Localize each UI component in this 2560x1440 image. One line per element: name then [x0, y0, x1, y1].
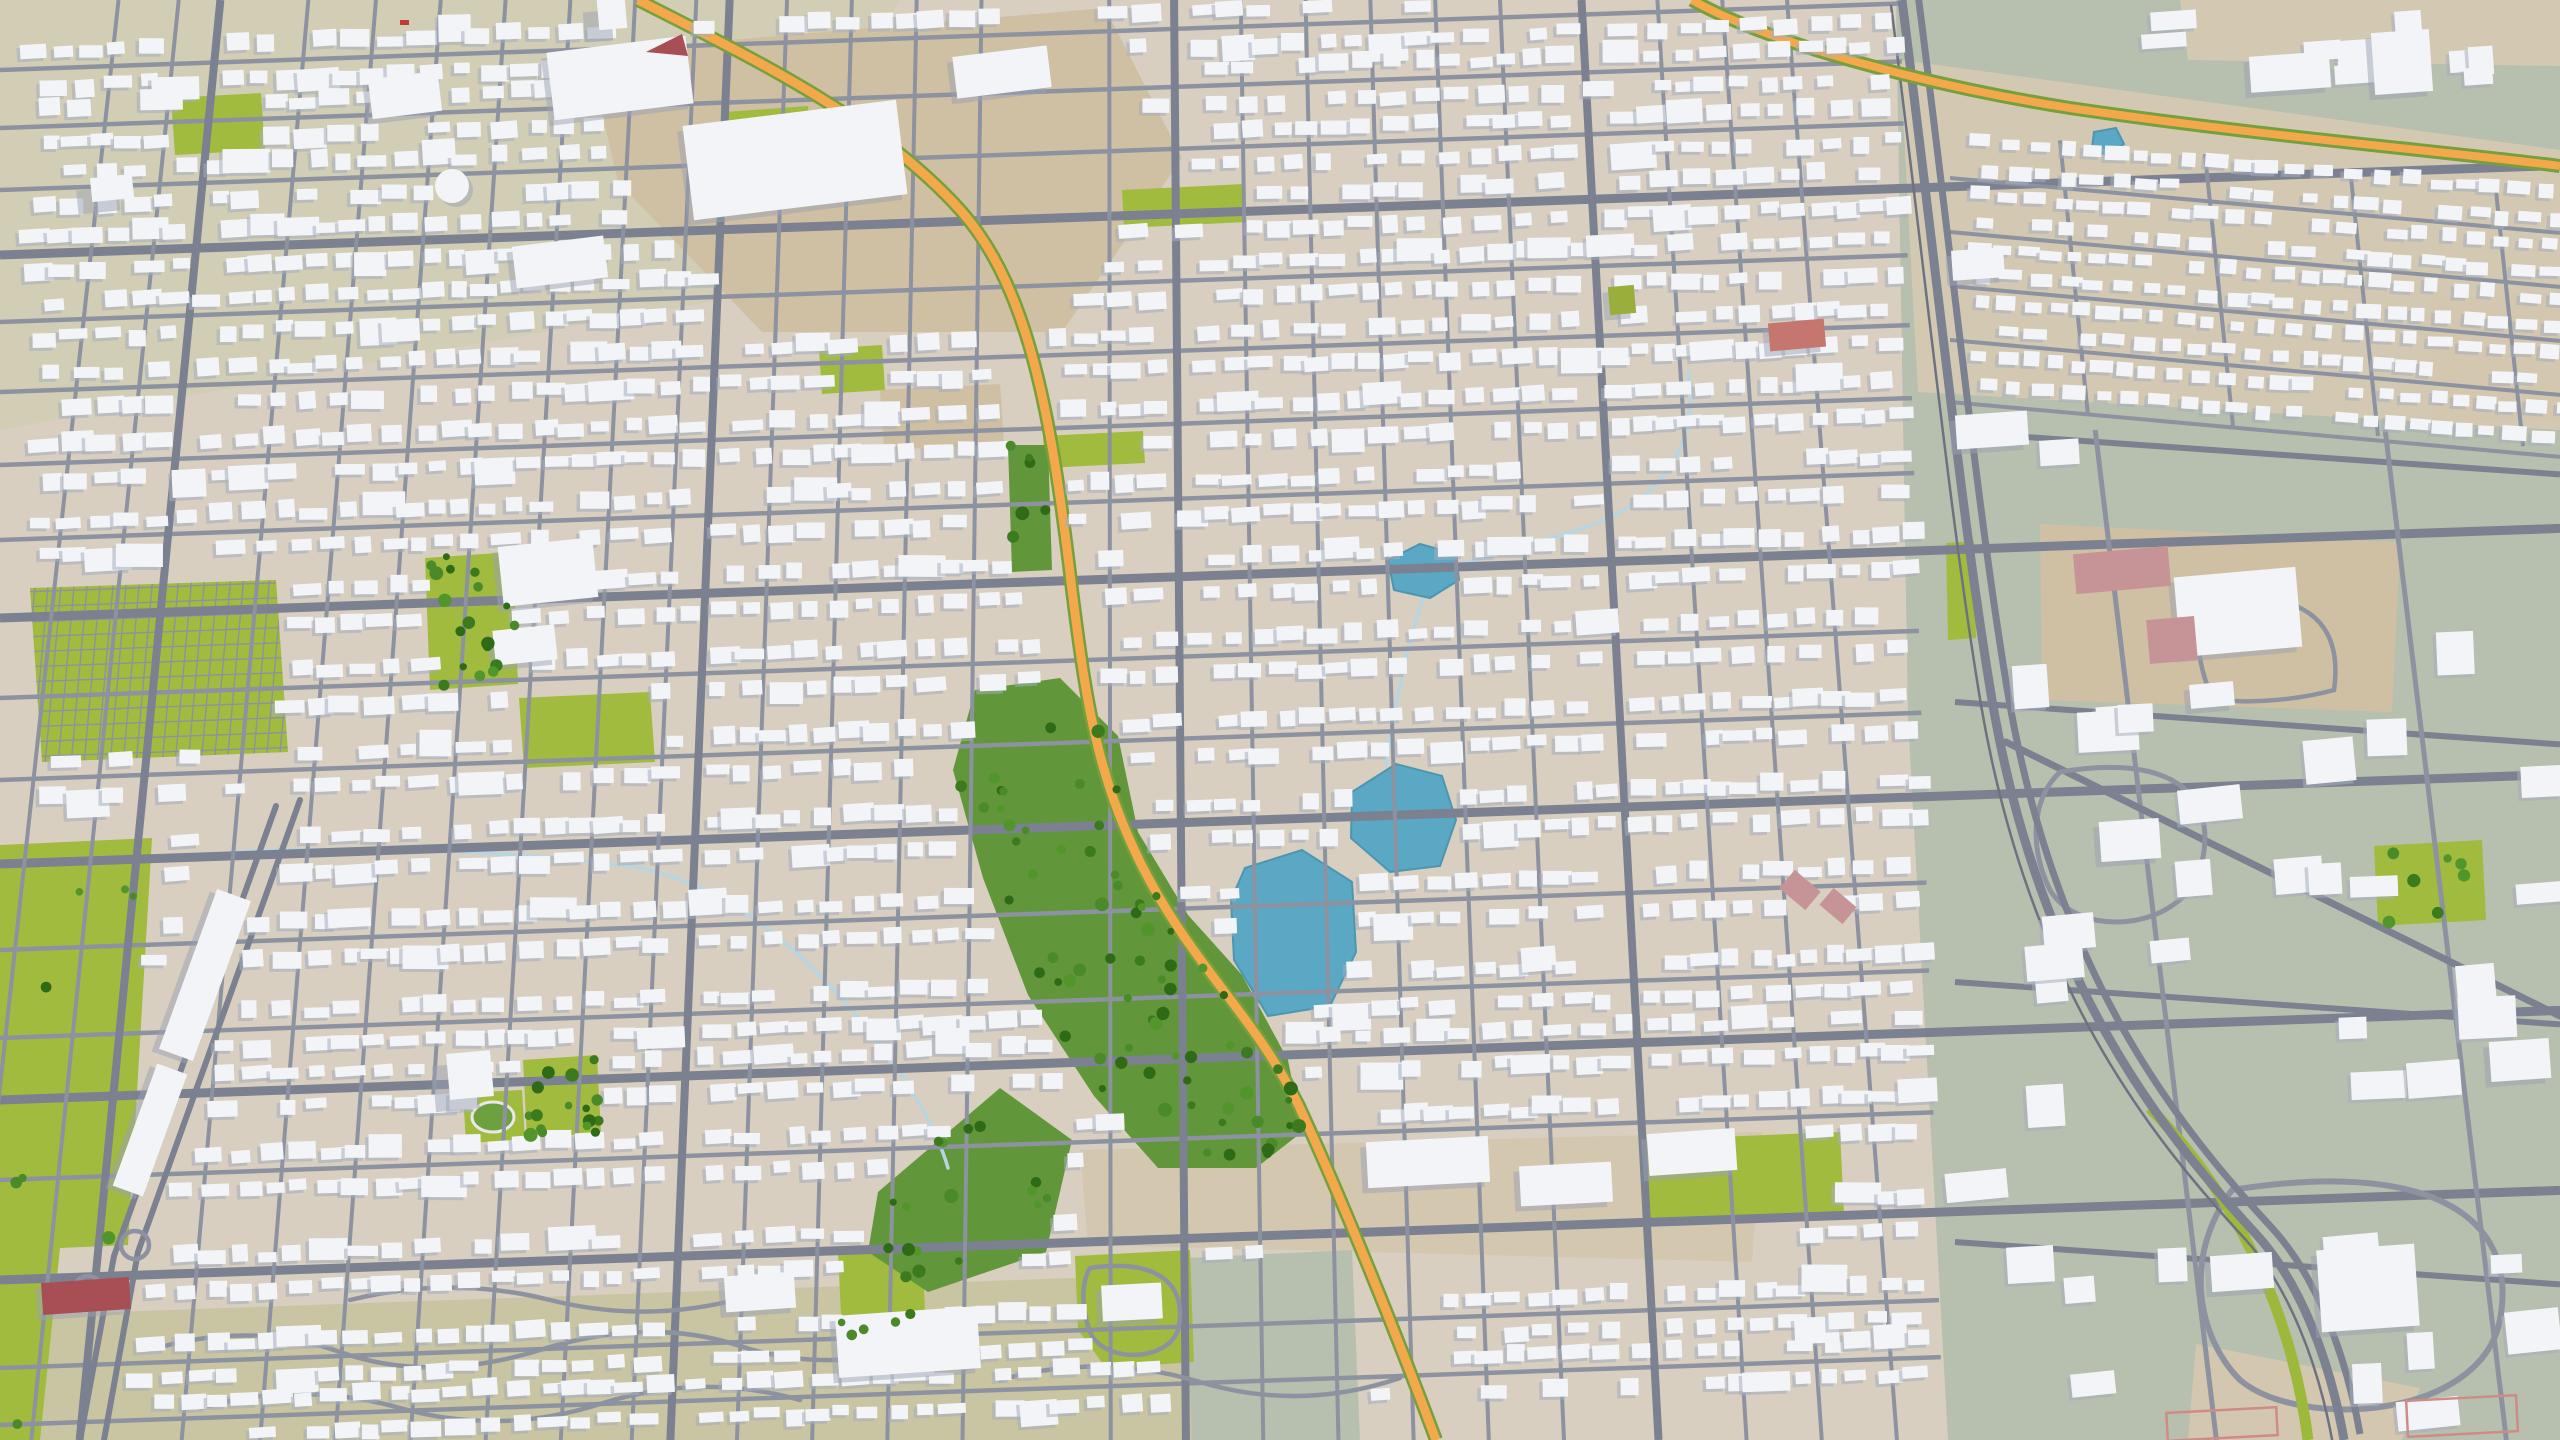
building: [487, 120, 519, 142]
building: [328, 830, 362, 845]
tree: [974, 1121, 985, 1132]
building: [640, 308, 667, 326]
building: [1153, 631, 1179, 649]
building: [453, 122, 481, 141]
building: [1527, 700, 1555, 720]
bigbox-top-left: [362, 71, 443, 125]
building: [755, 900, 784, 916]
building: [719, 1378, 743, 1393]
building: [1407, 960, 1435, 982]
building: [707, 523, 737, 539]
building: [1026, 1306, 1051, 1324]
building: [110, 512, 139, 528]
tree: [1027, 1186, 1037, 1196]
building: [2091, 305, 2120, 323]
building: [1825, 1312, 1855, 1333]
red-vehicle: [400, 20, 409, 25]
building: [1699, 1095, 1732, 1111]
building: [1321, 662, 1351, 677]
building: [2288, 376, 2313, 393]
building: [1678, 142, 1704, 155]
building: [2022, 1084, 2066, 1132]
building: [568, 1360, 594, 1375]
tree: [1226, 1041, 1235, 1050]
building: [355, 744, 389, 762]
building: [2460, 66, 2494, 89]
building: [380, 538, 409, 553]
building: [29, 196, 57, 216]
building: [312, 222, 338, 236]
building: [1883, 640, 1908, 657]
building: [1601, 385, 1635, 401]
building: [618, 653, 646, 668]
building: [452, 741, 486, 756]
building: [1413, 469, 1447, 485]
building: [541, 817, 569, 838]
building: [393, 614, 423, 631]
building: [802, 1409, 831, 1425]
building: [468, 1377, 498, 1399]
building: [1315, 468, 1340, 488]
building: [1183, 799, 1213, 814]
building: [1265, 661, 1297, 677]
building: [1849, 860, 1873, 877]
building: [1407, 911, 1434, 926]
tree: [591, 1128, 600, 1137]
building: [245, 1426, 276, 1440]
building: [976, 674, 1007, 694]
building: [1097, 668, 1127, 686]
building: [1436, 54, 1460, 69]
building: [1248, 38, 1282, 58]
building: [514, 996, 543, 1014]
tree: [1156, 1007, 1169, 1020]
building: [450, 1134, 481, 1156]
building: [1471, 215, 1502, 234]
building: [1608, 456, 1639, 475]
tree: [859, 1324, 869, 1334]
building: [1544, 423, 1569, 443]
building: [378, 425, 402, 446]
building: [790, 640, 818, 662]
tree: [1273, 1064, 1283, 1074]
building: [1721, 205, 1751, 223]
building: [1049, 1357, 1080, 1378]
building: [1559, 1097, 1591, 1115]
building: [998, 1036, 1026, 1057]
building: [1260, 503, 1292, 519]
building: [1125, 327, 1154, 346]
building: [590, 768, 614, 786]
building: [1597, 1056, 1630, 1071]
building: [1445, 1106, 1474, 1122]
building: [1677, 23, 1702, 36]
building: [386, 1035, 419, 1050]
building: [259, 425, 285, 447]
building: [411, 1237, 441, 1256]
building: [768, 342, 795, 358]
building: [421, 216, 448, 235]
building: [2517, 765, 2560, 801]
tree: [1005, 895, 1014, 904]
tree: [446, 565, 455, 574]
tree: [565, 1102, 573, 1110]
building: [1905, 776, 1931, 792]
building: [1098, 331, 1130, 344]
building: [1819, 771, 1845, 792]
building: [1434, 500, 1459, 517]
tree: [2443, 854, 2451, 862]
building: [367, 1367, 396, 1384]
ballfield-right-2: [2146, 616, 2198, 664]
building: [1256, 830, 1285, 850]
building: [1394, 738, 1425, 757]
building: [141, 395, 173, 417]
building: [455, 349, 481, 369]
building: [1671, 529, 1697, 549]
building: [748, 990, 775, 1005]
building: [461, 28, 489, 47]
building: [347, 190, 381, 207]
building: [1894, 1077, 1938, 1106]
building: [1561, 992, 1593, 1008]
building: [293, 189, 317, 204]
building: [616, 850, 648, 866]
building: [1741, 1050, 1775, 1068]
building: [377, 356, 402, 371]
building: [2392, 1396, 2461, 1435]
building: [598, 210, 627, 227]
building: [378, 1419, 408, 1435]
building: [1140, 436, 1172, 452]
depot-right-2: [1945, 247, 2005, 286]
building: [1803, 448, 1829, 468]
building: [311, 777, 341, 795]
building: [1498, 347, 1533, 368]
building: [29, 333, 56, 351]
building: [2036, 438, 2080, 469]
building: [571, 1132, 605, 1153]
building: [1303, 628, 1338, 647]
building: [227, 190, 260, 212]
building: [143, 516, 169, 531]
building: [1728, 646, 1756, 667]
building: [1501, 698, 1526, 719]
tree: [1048, 952, 1059, 963]
building: [271, 700, 305, 716]
building: [1817, 808, 1845, 828]
building: [934, 927, 960, 944]
building: [1397, 393, 1422, 411]
building: [657, 381, 681, 399]
building: [524, 1030, 557, 1050]
building: [1014, 671, 1041, 687]
building: [1542, 45, 1575, 66]
building: [1479, 820, 1519, 851]
building: [1735, 305, 1761, 326]
building: [140, 135, 170, 152]
building: [648, 766, 681, 782]
building: [1702, 20, 1729, 35]
building: [335, 287, 359, 303]
building: [770, 1370, 804, 1392]
building: [1869, 526, 1901, 546]
building: [1188, 158, 1215, 172]
building: [374, 36, 406, 50]
building: [797, 1228, 824, 1242]
tree: [76, 888, 84, 896]
tree: [1015, 506, 1029, 520]
building: [337, 29, 370, 50]
retail-strip-2: [1513, 1162, 1613, 1212]
building: [1245, 748, 1280, 767]
building: [1505, 86, 1529, 106]
building: [609, 1056, 635, 1071]
building: [301, 1007, 331, 1021]
building: [362, 613, 393, 630]
building: [1147, 1394, 1172, 1416]
building: [1690, 647, 1722, 665]
building: [1534, 172, 1565, 193]
building: [1823, 37, 1847, 56]
building: [297, 826, 321, 846]
building: [1277, 33, 1304, 54]
building: [1777, 203, 1806, 221]
tree: [1198, 964, 1207, 973]
building: [2147, 9, 2197, 34]
building: [1434, 540, 1464, 560]
building: [1892, 1221, 1918, 1240]
building: [522, 1172, 551, 1191]
building: [309, 29, 338, 50]
building: [1478, 1022, 1506, 1043]
building: [492, 22, 521, 43]
tree: [503, 603, 510, 610]
building: [1297, 284, 1322, 304]
building: [1140, 401, 1167, 417]
building: [479, 86, 504, 102]
building: [1903, 1045, 1935, 1059]
warehouse-bottom-center: [718, 1272, 797, 1318]
building: [1599, 40, 1638, 66]
building: [225, 291, 254, 308]
building: [1861, 410, 1885, 428]
building: [610, 495, 636, 513]
building: [1717, 232, 1748, 254]
building: [193, 357, 220, 380]
building: [1624, 816, 1652, 836]
building: [1432, 281, 1458, 299]
building: [940, 888, 974, 907]
building: [1625, 697, 1655, 715]
building: [1440, 87, 1468, 103]
building: [1192, 474, 1221, 487]
bldg-loop-mid: [2093, 818, 2162, 867]
building: [225, 357, 258, 376]
bigbox-corner-tr: [2243, 51, 2332, 98]
building: [1355, 873, 1388, 895]
building: [1493, 577, 1512, 598]
building: [268, 149, 293, 170]
building: [2171, 859, 2213, 901]
building: [755, 730, 788, 745]
building: [460, 945, 486, 965]
building: [948, 331, 977, 351]
building: [1437, 912, 1461, 927]
building: [259, 126, 289, 148]
building: [659, 901, 688, 922]
building: [695, 934, 720, 949]
building: [1526, 313, 1551, 332]
building: [165, 1182, 192, 1200]
building: [466, 284, 497, 299]
tree: [426, 560, 436, 570]
office-right-edge: [2483, 1038, 2552, 1087]
building: [478, 65, 509, 84]
tree: [1045, 722, 1056, 733]
building: [1528, 993, 1554, 1011]
tree: [1099, 1085, 1106, 1092]
building: [566, 905, 600, 923]
tree: [1222, 1102, 1234, 1114]
building: [1686, 861, 1707, 882]
building: [1210, 123, 1238, 143]
tree: [1113, 785, 1121, 793]
building: [639, 938, 668, 956]
building: [1847, 981, 1882, 999]
building: [630, 1267, 660, 1282]
building: [503, 1380, 530, 1400]
building: [495, 424, 523, 443]
building: [1734, 610, 1759, 629]
building: [158, 1371, 183, 1387]
building: [716, 374, 741, 389]
building: [324, 125, 355, 145]
building: [2346, 875, 2398, 901]
building: [1720, 528, 1755, 548]
building: [729, 419, 764, 434]
building: [985, 1010, 1018, 1032]
building: [710, 1352, 742, 1366]
tree: [1220, 991, 1228, 999]
building: [1484, 243, 1517, 263]
building: [178, 1393, 208, 1413]
building: [1572, 608, 1620, 639]
building: [257, 1142, 284, 1164]
tree: [1012, 837, 1021, 846]
building: [1855, 893, 1883, 914]
building: [644, 814, 665, 835]
building: [217, 219, 251, 242]
building: [912, 676, 946, 696]
building: [354, 155, 387, 170]
building: [589, 816, 624, 837]
building: [730, 1133, 760, 1147]
building: [1774, 729, 1807, 748]
building: [331, 1065, 366, 1081]
building: [1904, 1329, 1929, 1348]
building: [487, 856, 517, 876]
building: [285, 97, 319, 113]
building: [1107, 362, 1141, 381]
tree: [979, 802, 990, 813]
building: [446, 1360, 479, 1373]
building: [122, 1373, 152, 1391]
building: [407, 657, 441, 675]
tree: [2455, 858, 2466, 869]
building: [1803, 564, 1836, 582]
building: [1538, 85, 1564, 106]
tree: [1028, 869, 1038, 879]
tree: [1094, 1053, 1106, 1065]
building: [1875, 338, 1903, 355]
building: [285, 1141, 316, 1162]
building: [913, 9, 945, 32]
tree: [1115, 1057, 1127, 1069]
building: [276, 911, 307, 931]
building: [1941, 1168, 2009, 1206]
building: [1678, 1049, 1707, 1066]
building: [314, 1367, 339, 1385]
building: [1819, 486, 1844, 507]
building: [1840, 1331, 1872, 1352]
building: [575, 1322, 608, 1339]
tree: [455, 626, 465, 636]
building: [1700, 1020, 1728, 1035]
building: [1876, 688, 1907, 705]
building: [1553, 23, 1581, 37]
building: [58, 398, 92, 419]
building: [608, 1325, 637, 1340]
tree: [905, 1309, 915, 1319]
building: [1630, 495, 1664, 511]
building: [1364, 426, 1399, 447]
building: [204, 1100, 238, 1120]
building: [480, 910, 513, 926]
building: [1702, 1376, 1726, 1392]
building: [1118, 1393, 1143, 1416]
building: [296, 508, 328, 523]
building: [1493, 461, 1521, 482]
building: [1152, 666, 1178, 686]
building: [625, 572, 657, 589]
building: [1796, 41, 1825, 56]
tree: [902, 1243, 915, 1256]
building: [142, 432, 173, 451]
building: [1268, 545, 1300, 565]
building: [1095, 550, 1124, 570]
tree: [1073, 963, 1086, 976]
building: [1582, 233, 1635, 260]
building: [117, 468, 146, 487]
tree: [1167, 928, 1174, 935]
building: [304, 950, 331, 969]
building: [843, 845, 877, 861]
building: [1228, 325, 1255, 340]
building: [1442, 707, 1470, 722]
building: [643, 1374, 675, 1396]
building: [16, 44, 47, 63]
building: [1317, 121, 1351, 138]
building: [315, 88, 350, 108]
building: [1899, 522, 1925, 543]
building: [533, 383, 565, 398]
building: [1130, 587, 1164, 604]
building: [972, 481, 1003, 498]
building: [1631, 537, 1665, 552]
tree: [565, 1068, 579, 1082]
building: [1539, 1379, 1568, 1401]
